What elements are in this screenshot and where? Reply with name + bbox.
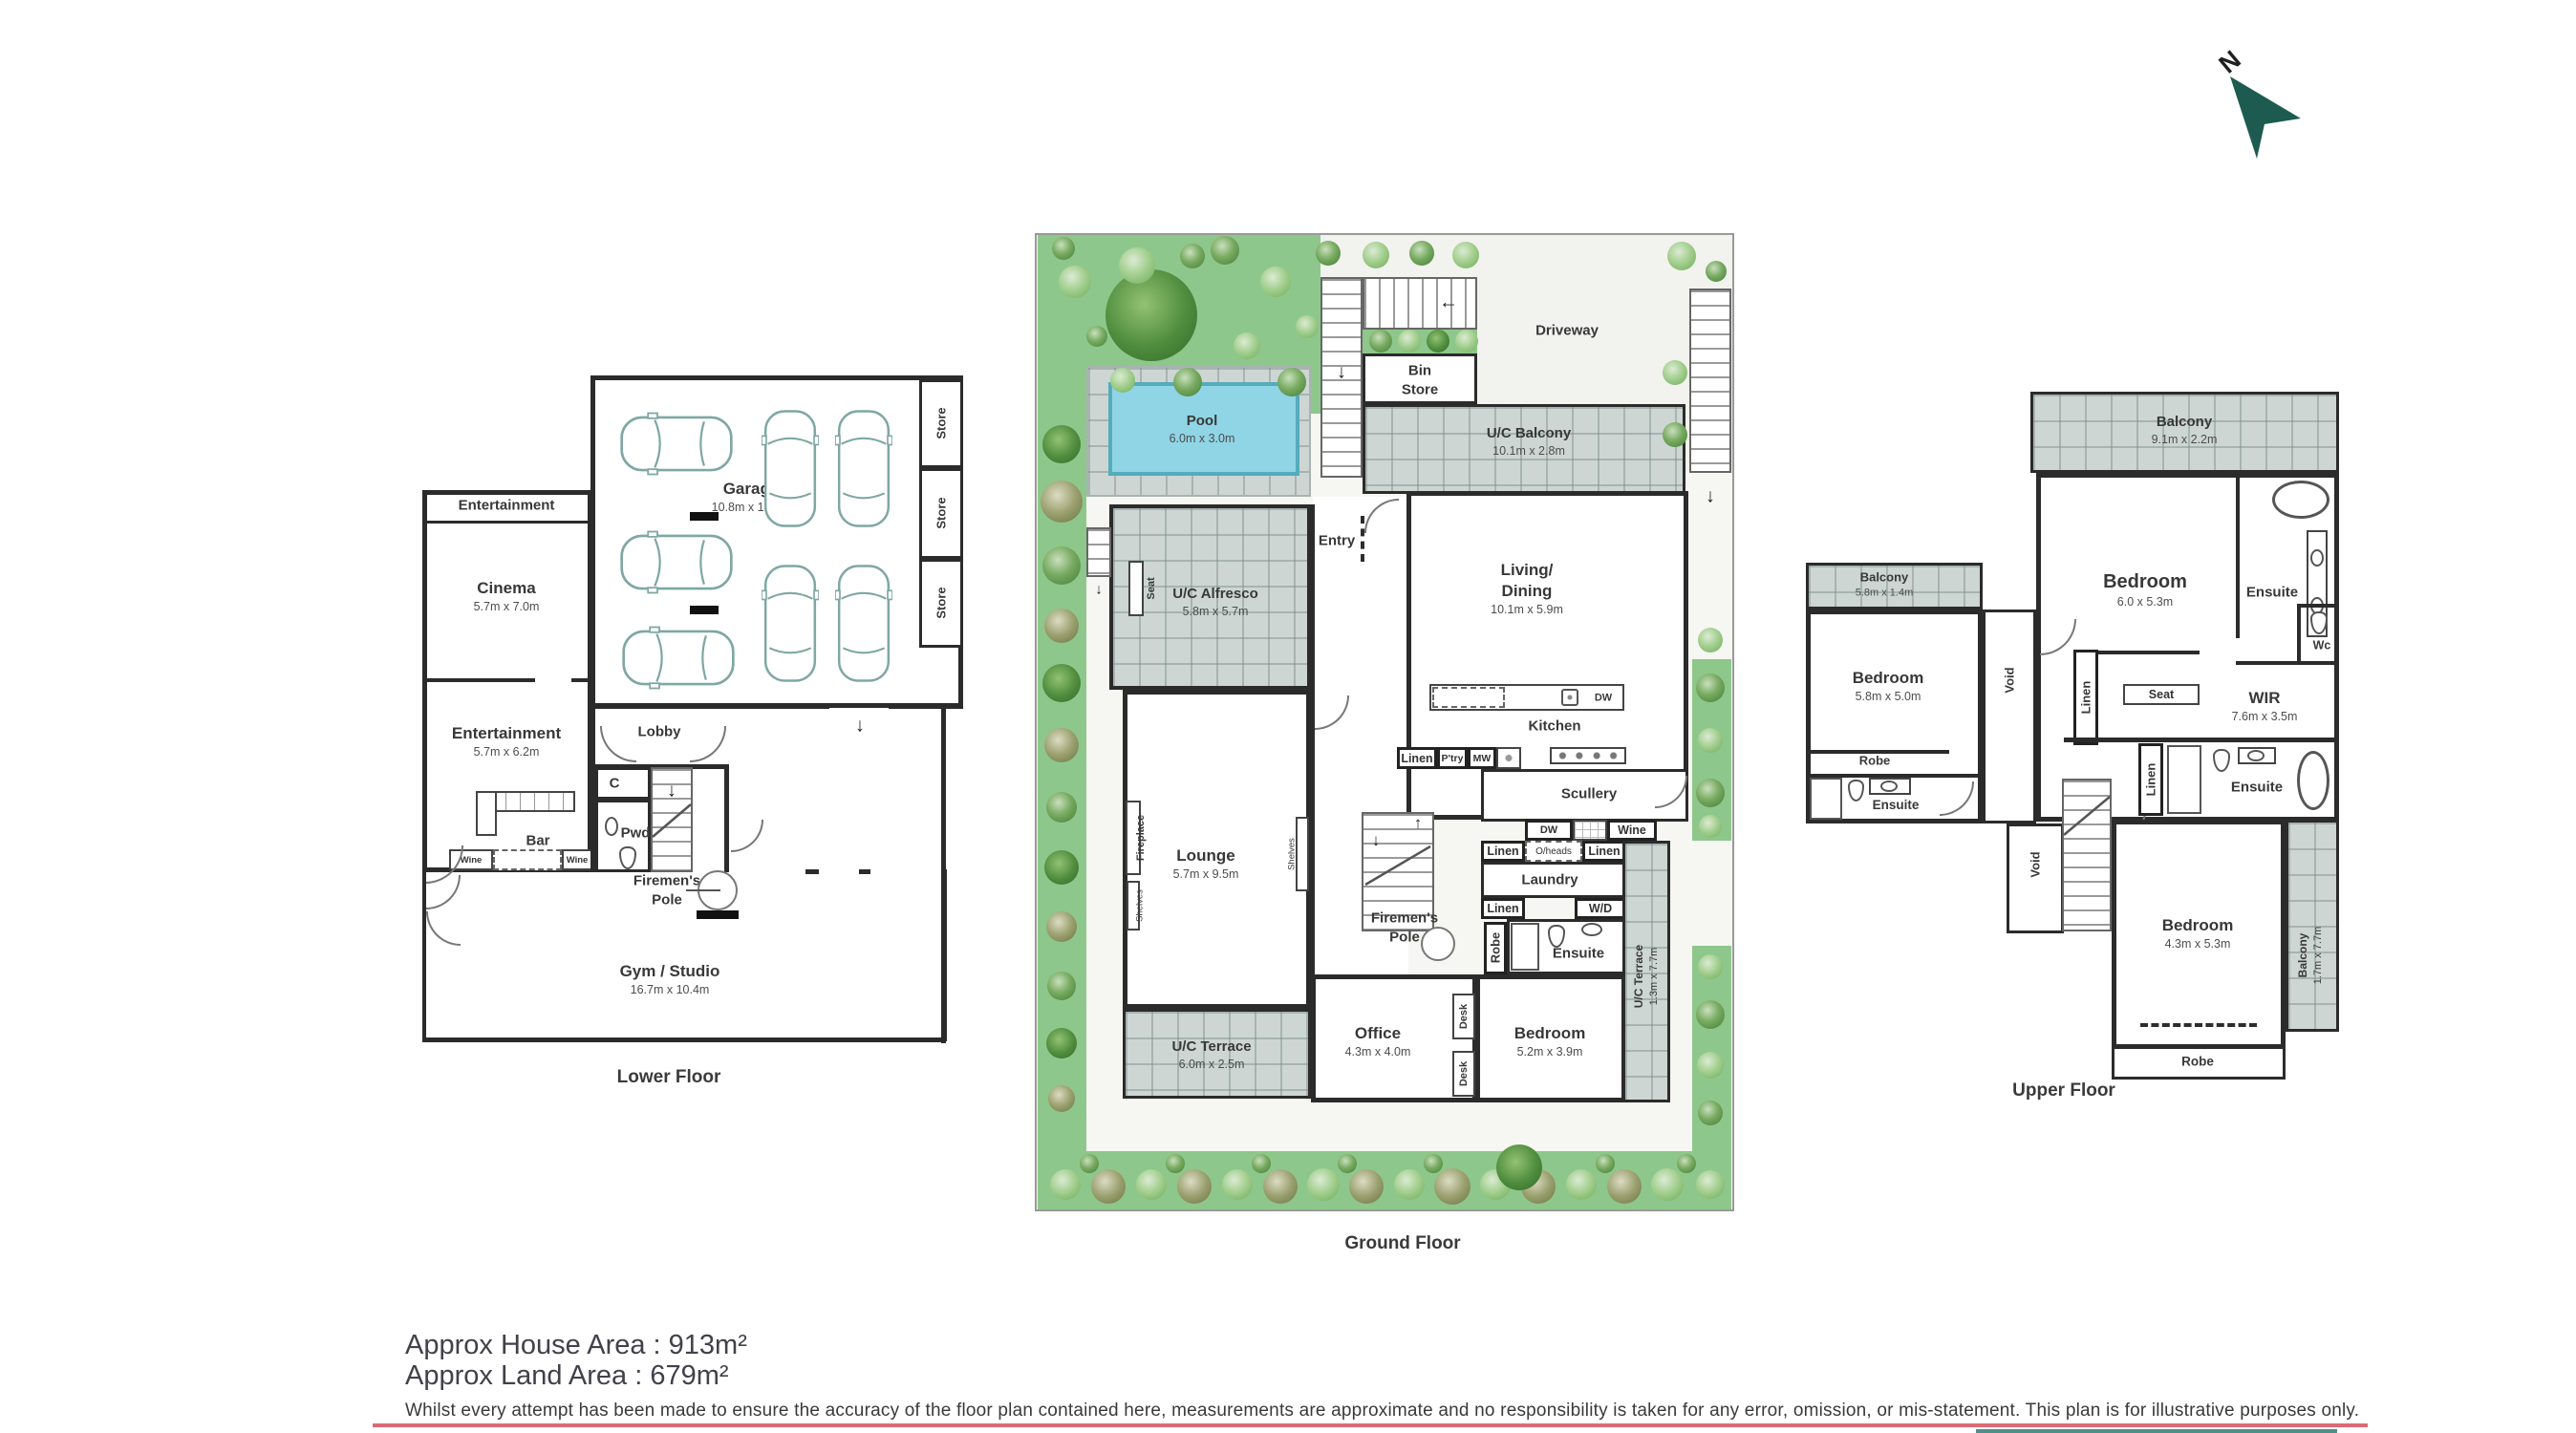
balcony-side-dims: 1.7m x 7.7m	[2312, 927, 2324, 985]
stair-arrow-down: ↓	[667, 781, 676, 802]
garden-steps	[1086, 527, 1111, 577]
dishwasher-label: DW	[1595, 688, 1612, 708]
seat-bench: Seat	[2123, 684, 2200, 705]
ensuite-master-label: Ensuite	[2246, 583, 2298, 602]
seat-label: Seat	[1146, 577, 1157, 599]
store-label: Store	[934, 407, 949, 438]
wine-rack-icon	[1573, 820, 1607, 841]
room-label-lobby: Lobby	[638, 722, 681, 741]
scullery-label: Scullery	[1561, 784, 1617, 803]
room-label-entertainment-lower: Entertainment 5.7m x 6.2m	[452, 723, 561, 759]
house-area-text: Approx House Area : 913m²	[405, 1330, 747, 1361]
basin-icon	[2310, 549, 2324, 567]
basin-icon	[605, 817, 618, 836]
door-arc	[426, 911, 461, 946]
steps-arrow-down: ↓	[1095, 582, 1103, 598]
sink-icon	[1496, 747, 1521, 769]
driveway-steps	[1363, 277, 1477, 330]
ensuite-label: Ensuite	[1553, 944, 1604, 963]
basin-icon	[1581, 923, 1602, 936]
steps-arrow-down: ↓	[1337, 362, 1346, 384]
uc-terrace-side-label: U/C Terrace	[1632, 945, 1645, 1008]
robe-label: Robe	[1489, 932, 1503, 964]
bathtub-icon	[2297, 751, 2329, 810]
lounge-label: Lounge 5.7m x 9.5m	[1173, 845, 1239, 882]
ensuite-2-label: Ensuite	[1873, 797, 1920, 814]
wine-cupboard: Wine	[1607, 820, 1657, 841]
balcony-rear-label: Balcony 9.1m x 2.2m	[2152, 413, 2218, 447]
bedroom-master-label: Bedroom 6.0 x 5.3m	[2103, 569, 2187, 610]
bed-dashed-line	[2140, 1023, 2257, 1027]
door-arc	[690, 726, 726, 762]
door-arc	[426, 875, 461, 909]
linen-cupboard: Linen	[1481, 841, 1525, 862]
floorplan-page: N Entertainment Cinema 5.7m x 7.0m Enter…	[0, 0, 2576, 1433]
robe-label: Robe	[1859, 752, 1891, 772]
room-label-cinema: Cinema 5.7m x 7.0m	[474, 578, 540, 614]
linen-cupboard: Linen	[1481, 898, 1525, 919]
wc-label: Wc	[2313, 636, 2331, 656]
teal-divider-line	[1976, 1429, 2337, 1433]
land-area-text: Approx Land Area : 679m²	[405, 1360, 729, 1392]
upper-floor-caption: Upper Floor	[2012, 1080, 2115, 1101]
bar-counter-return	[476, 791, 497, 836]
room-label-entertainment-upper: Entertainment	[459, 496, 555, 515]
shower-icon	[1511, 923, 1539, 971]
linen-cupboard: Linen	[1397, 747, 1437, 769]
uc-terrace-label: U/C Terrace 6.0m x 2.5m	[1164, 1037, 1259, 1072]
fireplace-label: Fireplace	[1135, 815, 1147, 861]
entry-label: Entry	[1319, 531, 1355, 550]
washer-dryer: W/D	[1575, 898, 1626, 919]
microwave-nook: MW	[1468, 747, 1496, 769]
void-label: Void	[2029, 851, 2043, 877]
disclaimer-text: Whilst every attempt has been made to en…	[405, 1401, 2359, 1422]
bin-store-label: Bin Store	[1391, 362, 1449, 399]
bar-cabinet-run	[493, 849, 562, 870]
ground-floor-caption: Ground Floor	[1344, 1233, 1460, 1254]
shelves-label: Shelves	[1135, 889, 1146, 922]
uc-terrace-side	[1622, 841, 1670, 1102]
shower-icon	[1810, 778, 1842, 820]
cooktop-icon	[1550, 747, 1626, 764]
linen-cupboard: Linen	[1582, 841, 1626, 862]
void-shaft-2	[2007, 823, 2064, 933]
stair-arrow-down: ↓	[855, 716, 865, 738]
uc-terrace-side-dims: 1.3m x 7.7m	[1648, 948, 1660, 1006]
stairs-arrow-down: ↓	[1706, 486, 1715, 508]
uc-alfresco-label: U/C Alfresco 5.8m x 5.7m	[1168, 585, 1263, 619]
balcony-side-label: Balcony	[2296, 933, 2309, 978]
desk-label: Desk	[1458, 1061, 1470, 1086]
void-shaft	[1983, 610, 2036, 823]
office-label: Office 4.3m x 4.0m	[1345, 1023, 1411, 1059]
sink-icon	[1561, 689, 1578, 706]
pink-divider-line	[373, 1423, 2368, 1427]
living-dining-label: Living/ Dining 10.1m x 5.9m	[1489, 560, 1565, 617]
robe-2-label: Robe	[2181, 1053, 2214, 1073]
north-letter: N	[2214, 46, 2246, 79]
north-arrow-glyph	[2230, 76, 2301, 159]
pool-label: Pool 6.0m x 3.0m	[1170, 412, 1235, 446]
room-label-powder: Pwd	[621, 823, 651, 843]
closet-room	[595, 767, 651, 800]
shower-icon	[2167, 745, 2201, 814]
shelves	[1296, 817, 1309, 891]
ensuite-3-label: Ensuite	[2231, 778, 2283, 797]
wine-cabinet: Wine	[562, 849, 592, 870]
room-label-gym: Gym / Studio 16.7m x 10.4m	[620, 961, 720, 997]
firemens-pole-icon	[1421, 927, 1455, 961]
north-arrow: N	[2205, 46, 2320, 160]
bathtub-icon	[2272, 481, 2329, 519]
driveway-label: Driveway	[1535, 321, 1599, 340]
steps-arrow-left: ←	[1439, 292, 1458, 314]
seat-bench	[1128, 561, 1144, 616]
door-arc	[600, 726, 636, 762]
basin-icon	[2247, 750, 2265, 761]
entry-dashed-line	[1361, 516, 1364, 562]
side-stairs-right	[1689, 289, 1731, 473]
overheads-cupboard: O/heads	[1525, 841, 1582, 862]
bedroom-3-label: Bedroom 4.3m x 5.3m	[2162, 915, 2234, 952]
pole-base-bar	[697, 910, 739, 919]
room-label-closet: C	[610, 774, 620, 793]
kitchen-label: Kitchen	[1528, 716, 1580, 736]
store-label: Store	[934, 587, 949, 618]
dishwasher-cupboard: DW	[1525, 820, 1573, 841]
basin-icon	[1880, 781, 1898, 792]
stair-arrow-down: ↓	[1372, 831, 1381, 850]
void-label: Void	[2003, 667, 2017, 693]
uc-balcony-label: U/C Balcony 10.1m x 2.8m	[1486, 424, 1572, 459]
pantry-cupboard: P'try	[1437, 747, 1468, 769]
desk-label: Desk	[1458, 1004, 1470, 1029]
bedroom-2-label: Bedroom 5.8m x 5.0m	[1853, 668, 1924, 704]
stair-arrow-up: ↑	[1414, 814, 1423, 833]
lower-floor-caption: Lower Floor	[617, 1067, 721, 1088]
room-label-bar: Bar	[526, 831, 549, 850]
linen-label: Linen	[2079, 681, 2093, 715]
bedroom-ground-label: Bedroom 5.2m x 3.9m	[1514, 1023, 1586, 1059]
laundry-label: Laundry	[1521, 870, 1578, 889]
store-label: Store	[934, 497, 949, 528]
door-arc	[731, 820, 763, 852]
island-drawers	[1432, 687, 1505, 708]
linen-label: Linen	[2144, 763, 2158, 797]
shelves-label: Shelves	[1287, 838, 1298, 870]
balcony-left-label: Balcony 5.8m x 1.4m	[1856, 569, 1914, 599]
wir-label: WIR 7.6m x 3.5m	[2232, 688, 2298, 724]
